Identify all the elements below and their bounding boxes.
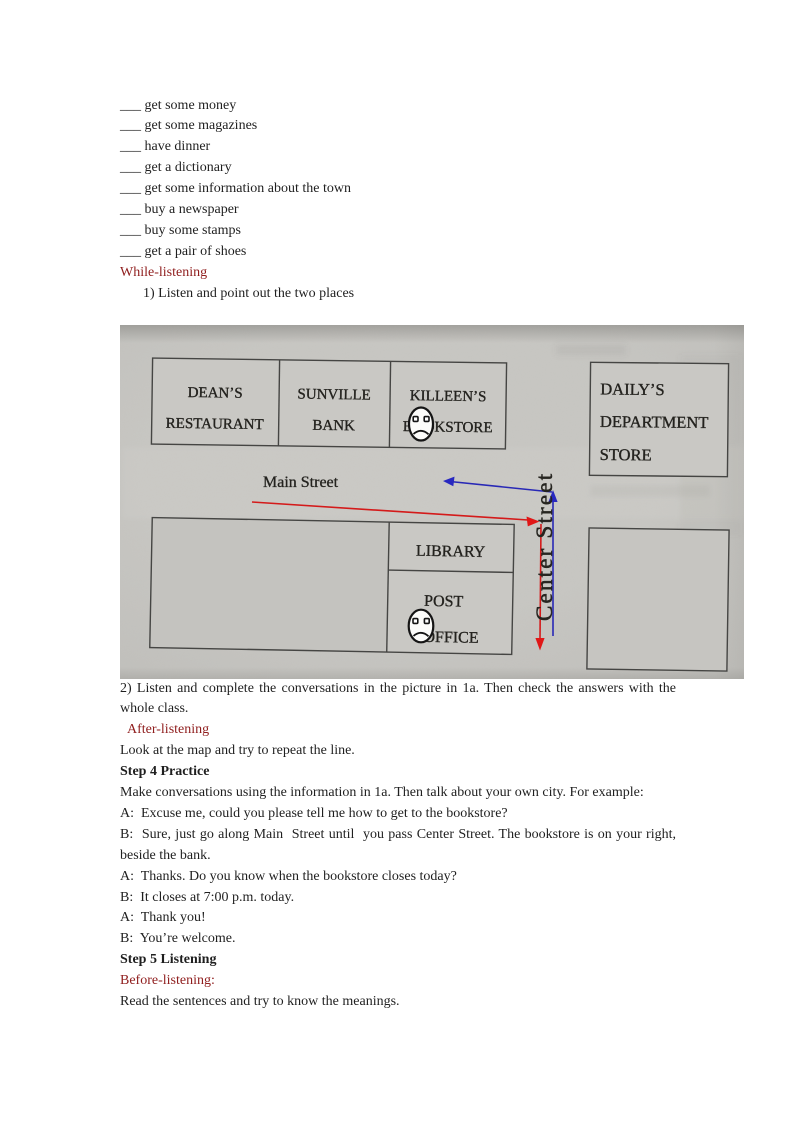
svg-text:RESTAURANT: RESTAURANT (166, 416, 264, 433)
svg-text:Main Street: Main Street (263, 474, 339, 491)
svg-text:SUNVILLE: SUNVILLE (297, 387, 371, 404)
svg-text:Center Street: Center Street (532, 472, 557, 621)
svg-text:POST: POST (424, 593, 464, 611)
svg-text:BANK: BANK (312, 418, 355, 435)
svg-text:KILLEEN’S: KILLEEN’S (410, 388, 487, 405)
svg-text:DEPARTMENT: DEPARTMENT (600, 412, 709, 432)
svg-text:STORE: STORE (600, 445, 652, 465)
svg-text:DAILY’S: DAILY’S (600, 379, 665, 399)
svg-text:DEAN’S: DEAN’S (188, 385, 243, 402)
svg-text:LIBRARY: LIBRARY (416, 543, 486, 561)
